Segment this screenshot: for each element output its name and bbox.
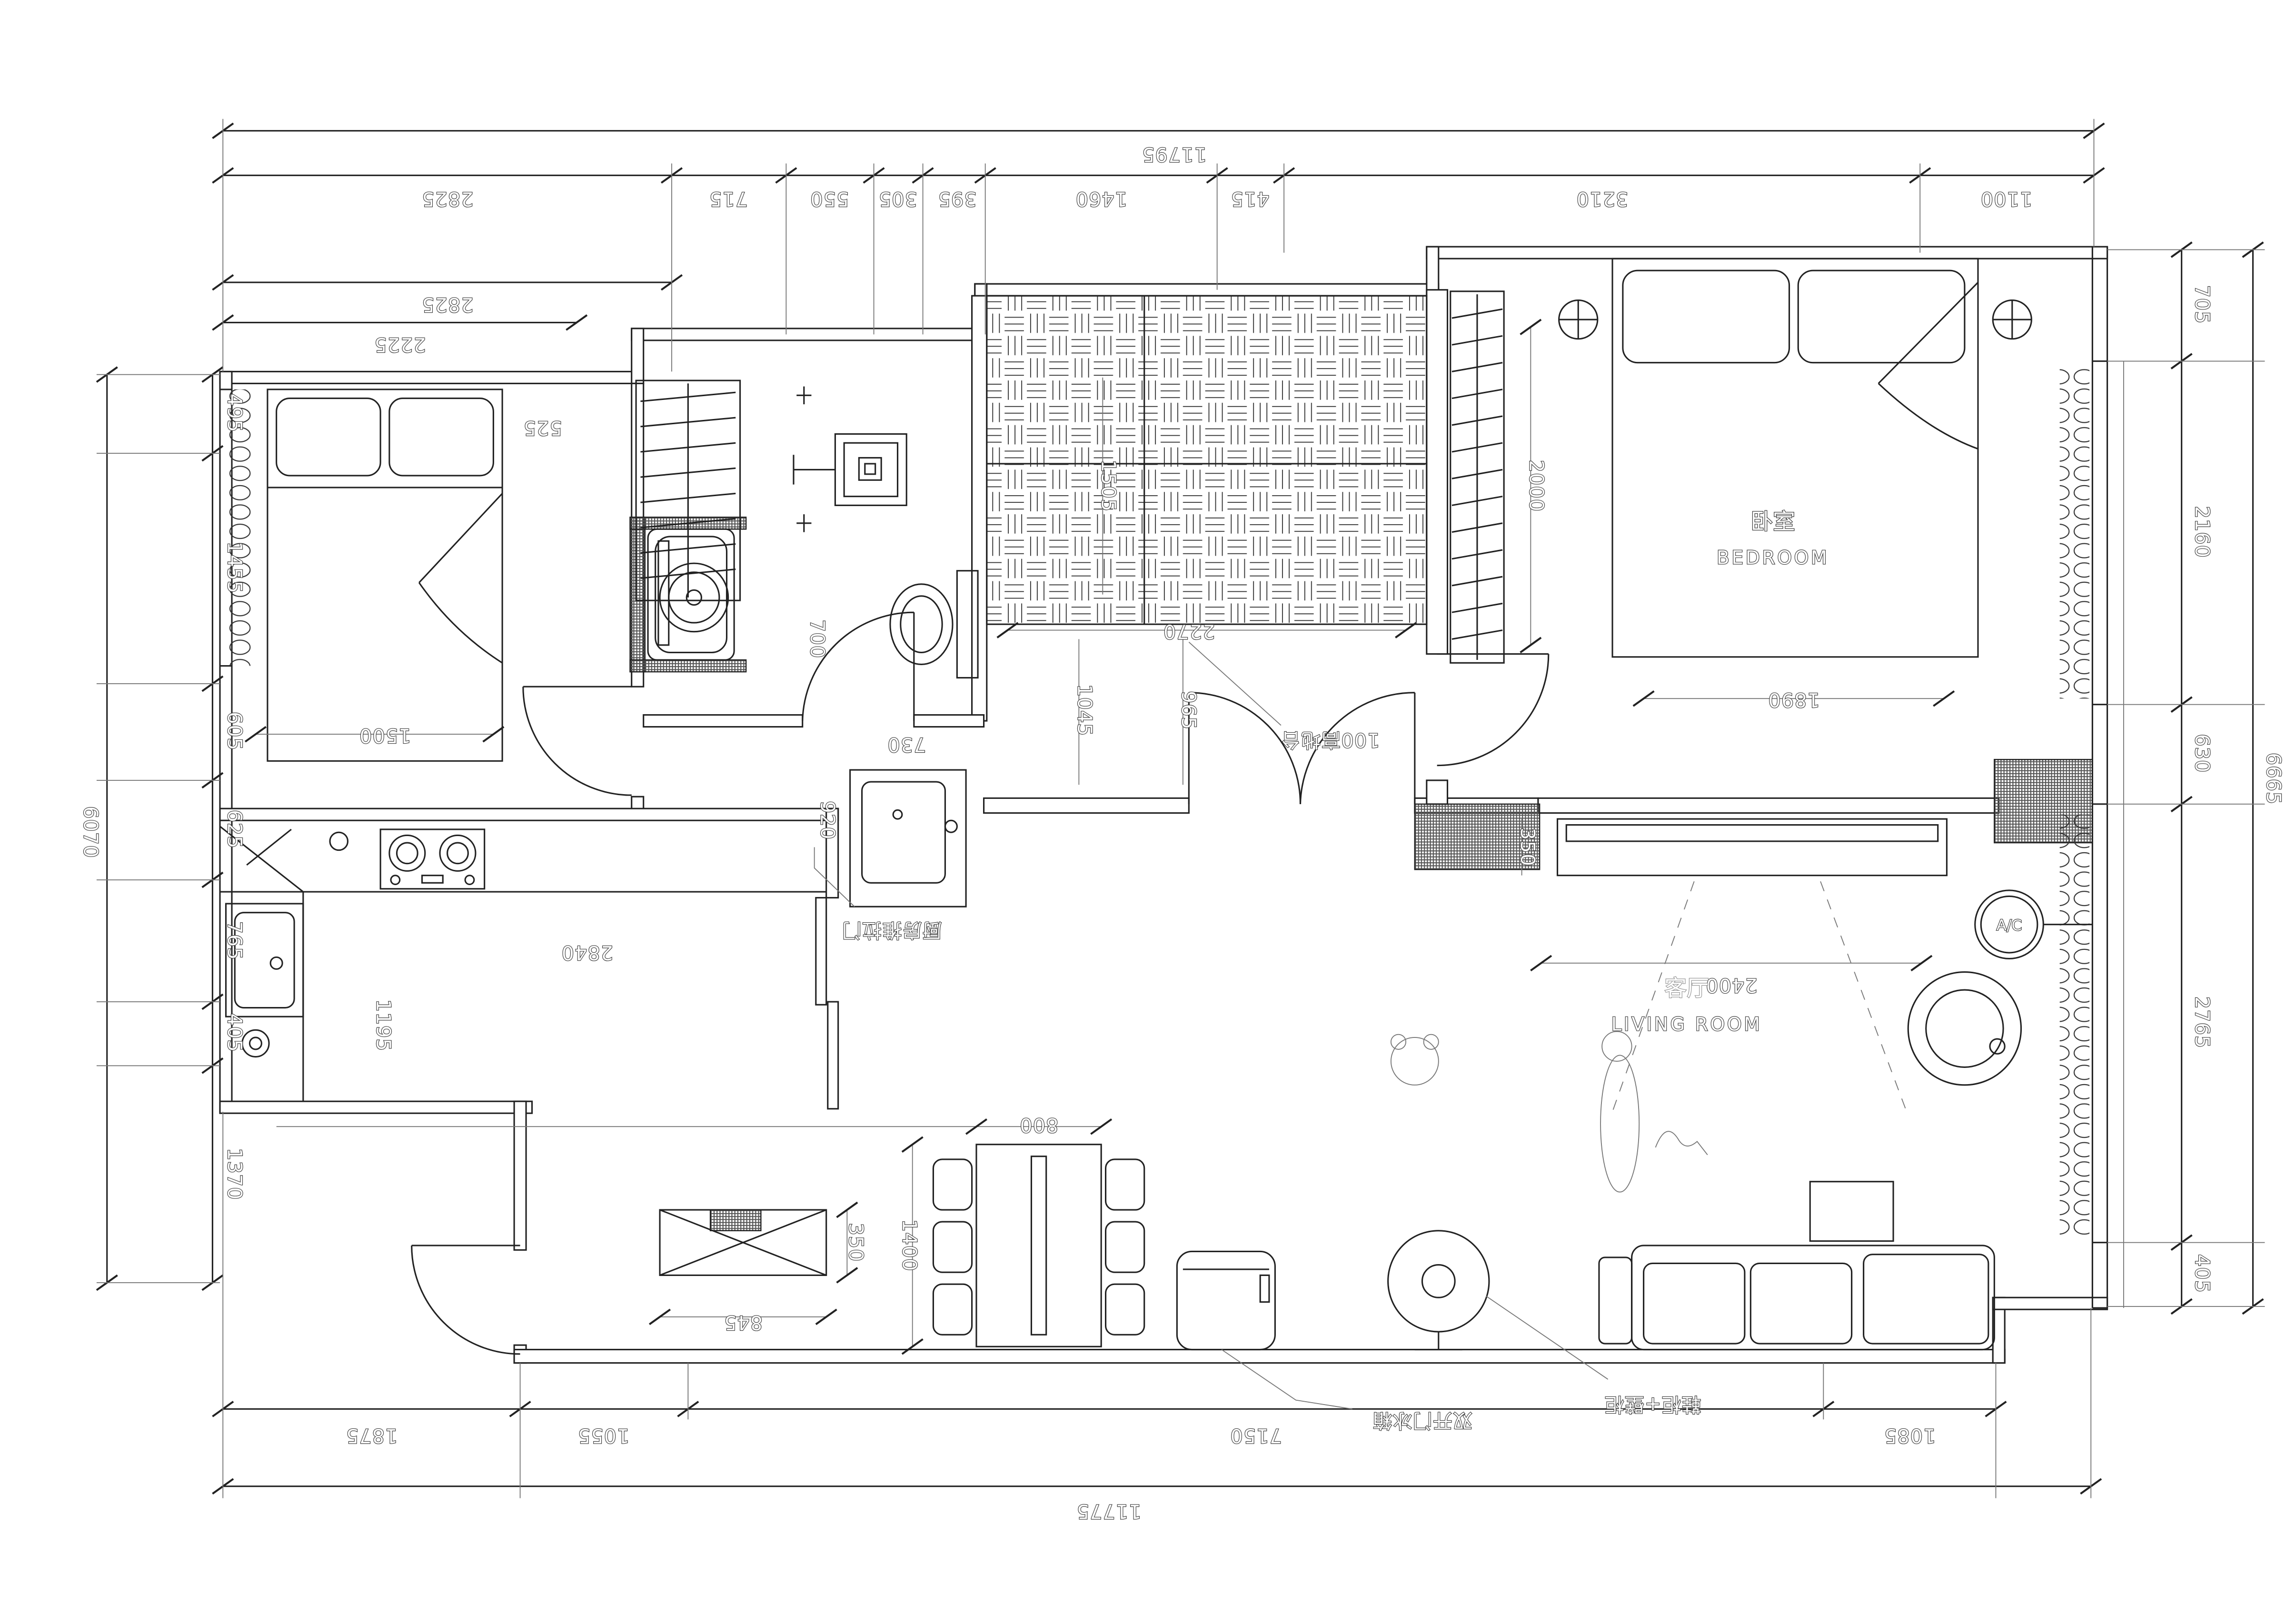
dim: 495 (223, 394, 246, 433)
dim: 550 (810, 188, 849, 210)
tv-view-lines (1612, 881, 1907, 1112)
bedroom-window-curtain (2060, 369, 2089, 698)
toilet (890, 571, 978, 678)
pillow (389, 399, 494, 476)
dim: 1890 (1768, 688, 1820, 711)
hangers (1452, 294, 1502, 660)
sofa (1599, 1182, 1994, 1350)
bedroom-label-en: BEDROOM (1717, 547, 1829, 568)
dim: 1100 (1980, 188, 2033, 210)
dim: 1045 (1073, 684, 1096, 737)
room-labels: 卧室 BEDROOM 客厅 LIVING ROOM A/C (1611, 509, 2022, 1035)
floor-drain-icon (242, 1030, 269, 1057)
ceiling-lamp-icons (1559, 300, 2032, 339)
dim: 1195 (372, 999, 395, 1052)
dim: 1055 (577, 1424, 630, 1447)
dim: 705 (2191, 285, 2214, 324)
pillow (277, 399, 381, 476)
living-label-en: LIVING ROOM (1611, 1014, 1762, 1035)
dim: 3210 (1576, 188, 1628, 210)
dim: 2000 (1525, 460, 1548, 512)
floor-plan-drawing: 11795 2825 715 550 305 395 1460 415 3210… (0, 0, 2296, 1605)
dim: 405 (2191, 1254, 2214, 1293)
gas-valve-icon (330, 832, 348, 850)
bedroom2-furniture (268, 380, 740, 761)
dim: 715 (709, 188, 748, 210)
dim-top-total: 11795 (1142, 143, 1207, 166)
bed1 (1612, 259, 1978, 657)
annotation-labels: 100高地台 厨房推拉门 双开门冰箱 鞋柜+壁柜 (842, 728, 1701, 1432)
living-label-zh: 客厅 (1664, 976, 1709, 1002)
valve-icon (796, 387, 811, 532)
tv (1566, 825, 1938, 841)
dim: 395 (937, 188, 976, 210)
bedroom2-door (523, 687, 632, 795)
platform-annotation: 100高地台 (1281, 728, 1380, 751)
dim: 2160 (2191, 506, 2214, 558)
dim: 1875 (346, 1424, 398, 1447)
dim: 350 (845, 1223, 867, 1262)
dim: 1370 (223, 1148, 246, 1200)
entry-door (412, 1246, 520, 1354)
dim: 605 (223, 712, 246, 751)
pillow (1798, 270, 1965, 363)
dim: 2765 (2191, 997, 2214, 1049)
dim: 625 (223, 810, 246, 849)
dim: 2270 (1163, 620, 1215, 643)
dim: 800 (1019, 1114, 1058, 1136)
dim: 700 (806, 619, 829, 658)
blanket-fold (268, 488, 502, 663)
dim: 305 (878, 188, 917, 210)
dim: 965 (1177, 691, 1200, 730)
dim: 2825 (421, 188, 474, 210)
blanket-fold (1879, 282, 1978, 449)
dim: 1085 (1884, 1424, 1936, 1447)
dim: 1460 (1075, 188, 1127, 210)
dim: 765 (223, 921, 246, 960)
living-room (1388, 819, 2093, 1349)
faucet-icon (945, 820, 957, 832)
fridge (1177, 1251, 1275, 1349)
floor-plan-sheet: 11795 2825 715 550 305 395 1460 415 3210… (0, 0, 2296, 1605)
dim: 1500 (359, 724, 411, 747)
dim: 405 (223, 1014, 246, 1053)
pillow (1623, 270, 1789, 363)
decor-figures (1391, 1031, 1708, 1192)
shower (794, 387, 906, 532)
bed2 (268, 389, 502, 761)
dim: 630 (2191, 734, 2214, 773)
fridge-annotation: 双开门冰箱 (1372, 1409, 1472, 1432)
dim: 920 (816, 801, 839, 840)
wardrobe2 (636, 380, 740, 600)
dim: 845 (724, 1311, 763, 1334)
dim-left-total: 6070 (79, 806, 102, 858)
living-window-curtain (2060, 815, 2089, 1237)
dining-chairs (933, 1159, 1144, 1335)
dining-table (976, 1145, 1101, 1347)
dim: 1505 (1097, 460, 1120, 512)
dim: 7150 (1230, 1424, 1282, 1447)
tv-cabinet (1558, 819, 1947, 876)
dim: 2840 (561, 941, 613, 964)
entry (660, 1210, 826, 1275)
floor-lamp (1908, 972, 2021, 1085)
ac-label: A/C (1997, 917, 2022, 934)
dim-bottom-total: 11775 (1076, 1500, 1141, 1523)
platform-closet (987, 296, 1427, 624)
kitchen-counter (220, 827, 826, 1102)
dim: 1400 (898, 1219, 921, 1272)
dim: 730 (887, 733, 926, 756)
dim: 415 (1230, 188, 1269, 210)
kitchen-sliding-door (816, 898, 838, 1109)
entry-cabinet-annotation: 鞋柜+壁柜 (1604, 1393, 1701, 1416)
dim: 2225 (374, 333, 426, 356)
shoe-cabinet (660, 1210, 826, 1275)
table-runner (1031, 1156, 1046, 1335)
dim: 2400 (1705, 974, 1758, 997)
side-table (1810, 1182, 1893, 1241)
bedroom-door (1437, 654, 1549, 766)
wardrobe1 (1451, 291, 1504, 663)
kitchen (220, 827, 826, 1102)
dining (933, 1145, 1275, 1350)
dim: 2825 (421, 293, 474, 316)
vanity-sink (850, 770, 966, 907)
dim: 350 (1516, 827, 1539, 867)
dim-right-total: 6665 (2262, 753, 2285, 805)
dim: 525 (523, 417, 562, 439)
dim: 1455 (223, 542, 246, 594)
stove (380, 829, 485, 889)
bedroom-label-zh: 卧室 (1750, 509, 1795, 535)
kitchen-door-annotation: 厨房推拉门 (842, 919, 942, 942)
floor-fan (1388, 1231, 1489, 1350)
